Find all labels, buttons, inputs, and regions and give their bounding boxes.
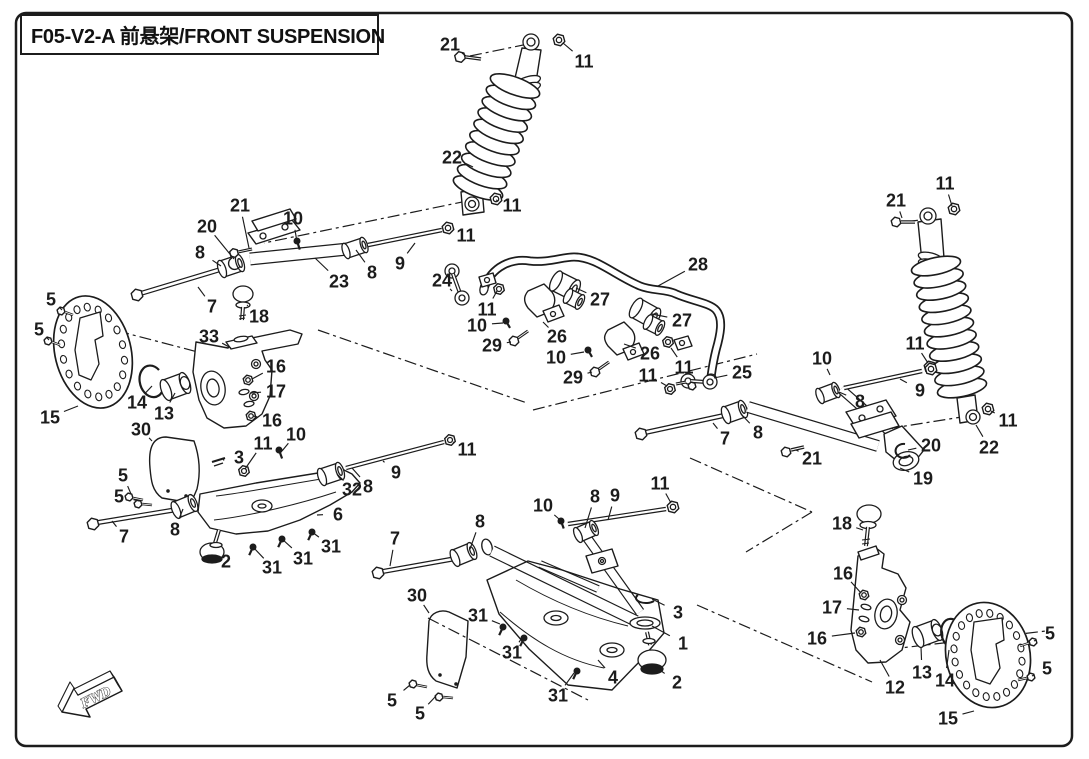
page-title: F05-V2-A 前悬架/FRONT SUSPENSION xyxy=(31,20,385,49)
part-label-8: 8 xyxy=(590,487,600,507)
part-label-10: 10 xyxy=(283,209,303,229)
part-label-13: 13 xyxy=(912,663,932,683)
part-label-11: 11 xyxy=(574,52,593,72)
part-label-3: 3 xyxy=(673,603,683,623)
part-label-30: 30 xyxy=(407,586,427,606)
part-label-7: 7 xyxy=(720,429,730,449)
part-label-6: 6 xyxy=(333,505,343,525)
part-label-10: 10 xyxy=(812,349,832,369)
suspension-diagram: FWD2111221121201081192387183355151413161… xyxy=(0,0,1089,759)
part-label-31: 31 xyxy=(548,686,568,706)
part-label-4: 4 xyxy=(608,668,618,688)
part-label-8: 8 xyxy=(753,423,763,443)
part-label-26: 26 xyxy=(640,344,660,364)
part-label-24: 24 xyxy=(432,271,452,291)
part-label-9: 9 xyxy=(610,486,620,506)
part-label-21: 21 xyxy=(230,196,250,216)
part-label-9: 9 xyxy=(915,381,925,401)
part-label-31: 31 xyxy=(262,558,282,578)
diagram-title-box: F05-V2-A 前悬架/FRONT SUSPENSION xyxy=(20,14,379,55)
part-label-7: 7 xyxy=(390,529,400,549)
part-label-10: 10 xyxy=(546,348,566,368)
parts-diagram-page: FWD2111221121201081192387183355151413161… xyxy=(0,0,1089,759)
part-label-9: 9 xyxy=(391,463,401,483)
part-label-16: 16 xyxy=(833,564,853,584)
part-label-10: 10 xyxy=(533,496,553,516)
part-label-13: 13 xyxy=(154,404,174,424)
upper-a-arm-right xyxy=(635,363,937,473)
steering-knuckle-right xyxy=(851,505,961,663)
part-label-9: 9 xyxy=(395,254,405,274)
part-label-31: 31 xyxy=(502,643,522,663)
part-label-11: 11 xyxy=(674,358,693,378)
part-label-11: 11 xyxy=(650,474,669,494)
part-label-12: 12 xyxy=(885,678,905,698)
part-label-31: 31 xyxy=(293,549,313,569)
part-label-8: 8 xyxy=(855,392,865,412)
part-label-18: 18 xyxy=(832,514,852,534)
part-label-11: 11 xyxy=(457,440,476,460)
part-label-17: 17 xyxy=(822,598,842,618)
part-label-14: 14 xyxy=(127,393,147,413)
part-label-31: 31 xyxy=(321,537,341,557)
shock-absorber-top xyxy=(451,34,565,215)
part-label-8: 8 xyxy=(170,520,180,540)
part-label-5: 5 xyxy=(1042,659,1052,679)
part-label-7: 7 xyxy=(207,297,217,317)
part-label-5: 5 xyxy=(1045,624,1055,644)
part-label-33: 33 xyxy=(199,327,219,347)
brake-disc-right xyxy=(936,594,1040,715)
part-label-1: 1 xyxy=(678,634,688,654)
part-label-27: 27 xyxy=(590,290,610,310)
fwd-arrow: FWD xyxy=(58,671,122,717)
part-label-16: 16 xyxy=(262,411,282,431)
part-label-7: 7 xyxy=(119,527,129,547)
part-label-16: 16 xyxy=(266,357,286,377)
part-label-23: 23 xyxy=(329,272,349,292)
part-label-8: 8 xyxy=(475,512,485,532)
part-label-27: 27 xyxy=(672,311,692,331)
part-label-19: 19 xyxy=(913,469,933,489)
part-label-5: 5 xyxy=(114,487,124,507)
part-label-29: 29 xyxy=(482,336,502,356)
part-label-14: 14 xyxy=(935,671,955,691)
part-label-22: 22 xyxy=(979,438,999,458)
part-label-5: 5 xyxy=(46,290,56,310)
part-label-15: 15 xyxy=(40,408,60,428)
part-label-22: 22 xyxy=(442,148,462,168)
part-label-10: 10 xyxy=(467,316,487,336)
shock-absorber-right xyxy=(891,203,994,424)
part-label-11: 11 xyxy=(638,366,657,386)
part-label-11: 11 xyxy=(502,196,521,216)
part-label-32: 32 xyxy=(342,480,362,500)
part-label-5: 5 xyxy=(387,691,397,711)
part-label-28: 28 xyxy=(688,255,708,275)
part-label-21: 21 xyxy=(440,35,460,55)
part-label-11: 11 xyxy=(253,434,272,454)
part-label-16: 16 xyxy=(807,629,827,649)
part-label-15: 15 xyxy=(938,709,958,729)
part-label-3: 3 xyxy=(234,448,244,468)
part-label-21: 21 xyxy=(886,191,906,211)
part-label-2: 2 xyxy=(221,552,231,572)
part-label-18: 18 xyxy=(249,307,269,327)
part-label-8: 8 xyxy=(363,477,373,497)
part-label-17: 17 xyxy=(266,382,286,402)
part-label-8: 8 xyxy=(195,243,205,263)
part-label-29: 29 xyxy=(563,368,583,388)
part-label-31: 31 xyxy=(468,606,488,626)
part-label-11: 11 xyxy=(456,226,475,246)
part-label-26: 26 xyxy=(547,327,567,347)
part-label-11: 11 xyxy=(998,411,1017,431)
part-label-2: 2 xyxy=(672,673,682,693)
part-label-11: 11 xyxy=(905,334,924,354)
part-label-20: 20 xyxy=(921,436,941,456)
part-label-5: 5 xyxy=(118,466,128,486)
part-label-20: 20 xyxy=(197,217,217,237)
part-label-8: 8 xyxy=(367,263,377,283)
part-label-5: 5 xyxy=(415,704,425,724)
part-label-11: 11 xyxy=(935,174,954,194)
part-label-5: 5 xyxy=(34,320,44,340)
part-label-30: 30 xyxy=(131,420,151,440)
part-label-21: 21 xyxy=(802,449,822,469)
part-label-25: 25 xyxy=(732,363,752,383)
part-label-10: 10 xyxy=(286,425,306,445)
